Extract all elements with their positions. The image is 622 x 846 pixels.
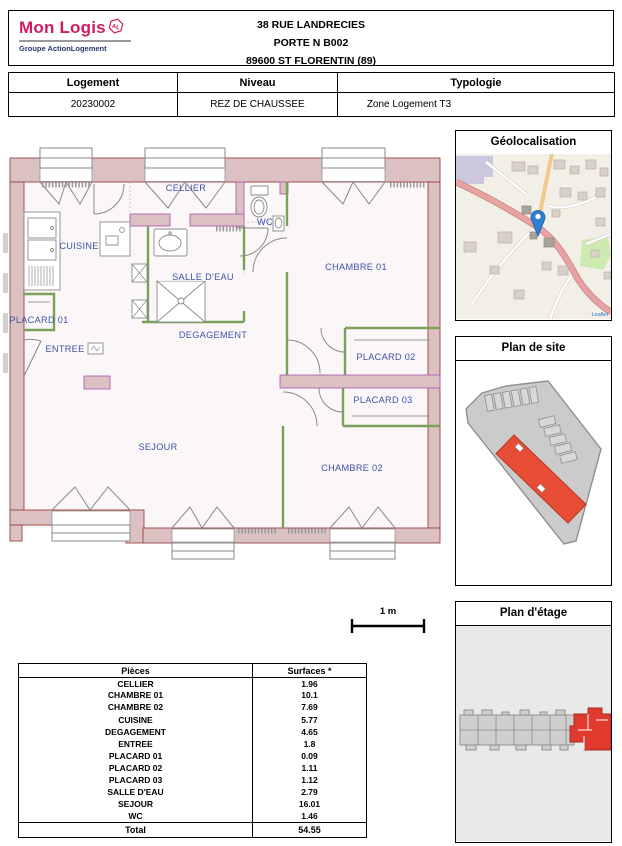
table-row: SALLE D'EAU2.79 (19, 786, 367, 798)
room-surface: 16.01 (253, 798, 367, 810)
panel-title-geolocalisation: Géolocalisation (455, 130, 612, 155)
room-surface: 0.09 (253, 750, 367, 762)
scale-label: 1 m (380, 606, 396, 617)
room-name: PLACARD 03 (19, 774, 253, 786)
toilet-tank (251, 186, 268, 195)
table-row: PLACARD 021.11 (19, 762, 367, 774)
room-surface: 1.11 (253, 762, 367, 774)
room-surface: 1.46 (253, 811, 367, 823)
total-value: 54.55 (253, 823, 367, 838)
room-label-entree: ENTREE (45, 344, 84, 354)
table-row: PLACARD 010.09 (19, 750, 367, 762)
site-plan-panel (455, 361, 612, 586)
room-name: CUISINE (19, 714, 253, 726)
info-value-logement: 20230002 (9, 93, 178, 117)
exterior-ledges (3, 233, 8, 373)
surfaces-table: Pièces Surfaces * CELLIER1.96 CHAMBRE 01… (18, 663, 367, 838)
panel-title-plan-etage: Plan d'étage (455, 601, 612, 626)
table-row: CELLIER1.96 (19, 678, 367, 690)
scale-bar: 1 m (340, 602, 440, 636)
table-row: DEGAGEMENT4.65 (19, 726, 367, 738)
room-label-wc: WC (257, 217, 273, 227)
panel-title-plan-de-site: Plan de site (455, 336, 612, 361)
floor-strip-drawing (456, 626, 611, 841)
room-surface: 1.96 (253, 678, 367, 690)
room-name: PLACARD 02 (19, 762, 253, 774)
table-row: CHAMBRE 027.69 (19, 702, 367, 714)
room-name: DEGAGEMENT (19, 726, 253, 738)
geolocation-map-panel[interactable]: Leaflet (455, 154, 612, 321)
room-name: PLACARD 01 (19, 750, 253, 762)
info-table: Logement Niveau Typologie 20230002 REZ D… (8, 72, 615, 117)
table-row: ENTREE1.8 (19, 738, 367, 750)
room-name: CHAMBRE 02 (19, 702, 253, 714)
room-label-placard-02: PLACARD 02 (356, 352, 415, 362)
info-header-logement: Logement (9, 73, 178, 93)
document-page: Mon Logis AL Groupe ActionLogement 38 RU… (0, 0, 622, 846)
room-name: SALLE D'EAU (19, 786, 253, 798)
property-address: 38 RUE LANDRECIES PORTE N B002 89600 ST … (9, 16, 613, 73)
info-value-niveau: REZ DE CHAUSSEE (178, 93, 338, 117)
room-name: SEJOUR (19, 798, 253, 810)
map-attribution-link[interactable]: Leaflet (591, 312, 608, 318)
site-plan-drawing (456, 361, 611, 584)
surfaces-header-pieces: Pièces (19, 664, 253, 678)
table-row: SEJOUR16.01 (19, 798, 367, 810)
info-header-niveau: Niveau (178, 73, 338, 93)
room-label-salle-deau: SALLE D'EAU (172, 272, 234, 282)
room-label-degagement: DEGAGEMENT (179, 330, 247, 340)
address-line-2: PORTE N B002 (9, 37, 613, 49)
address-line-3: 89600 ST FLORENTIN (89) (9, 55, 613, 67)
table-total-row: Total 54.55 (19, 823, 367, 838)
room-name: CELLIER (19, 678, 253, 690)
room-surface: 2.79 (253, 786, 367, 798)
address-line-1: 38 RUE LANDRECIES (9, 19, 613, 31)
room-surface: 5.77 (253, 714, 367, 726)
room-name: CHAMBRE 01 (19, 690, 253, 702)
room-label-cellier: CELLIER (166, 183, 206, 193)
info-header-typologie: Typologie (338, 73, 615, 93)
room-surface: 7.69 (253, 702, 367, 714)
header: Mon Logis AL Groupe ActionLogement 38 RU… (8, 10, 614, 66)
room-surface: 10.1 (253, 690, 367, 702)
floor-level-panel (455, 626, 612, 843)
room-label-chambre-02: CHAMBRE 02 (321, 463, 383, 473)
map-canvas[interactable]: Leaflet (456, 154, 611, 319)
room-label-sejour: SEJOUR (138, 442, 177, 452)
surfaces-header-surfaces: Surfaces * (253, 664, 367, 678)
table-row: WC1.46 (19, 811, 367, 823)
floor-plan-drawing: CELLIER WC CUISINE CHAMBRE 01 SALLE D'EA… (2, 126, 448, 562)
room-label-placard-01: PLACARD 01 (9, 315, 68, 325)
room-label-chambre-01: CHAMBRE 01 (325, 262, 387, 272)
room-label-placard-03: PLACARD 03 (353, 395, 412, 405)
info-value-typologie: Zone Logement T3 (338, 93, 615, 117)
room-label-cuisine: CUISINE (59, 241, 98, 251)
room-name: WC (19, 811, 253, 823)
total-label: Total (19, 823, 253, 838)
table-row: PLACARD 031.12 (19, 774, 367, 786)
table-row: CUISINE5.77 (19, 714, 367, 726)
room-name: ENTREE (19, 738, 253, 750)
table-row: CHAMBRE 0110.1 (19, 690, 367, 702)
room-surface: 4.65 (253, 726, 367, 738)
room-surface: 1.8 (253, 738, 367, 750)
room-surface: 1.12 (253, 774, 367, 786)
